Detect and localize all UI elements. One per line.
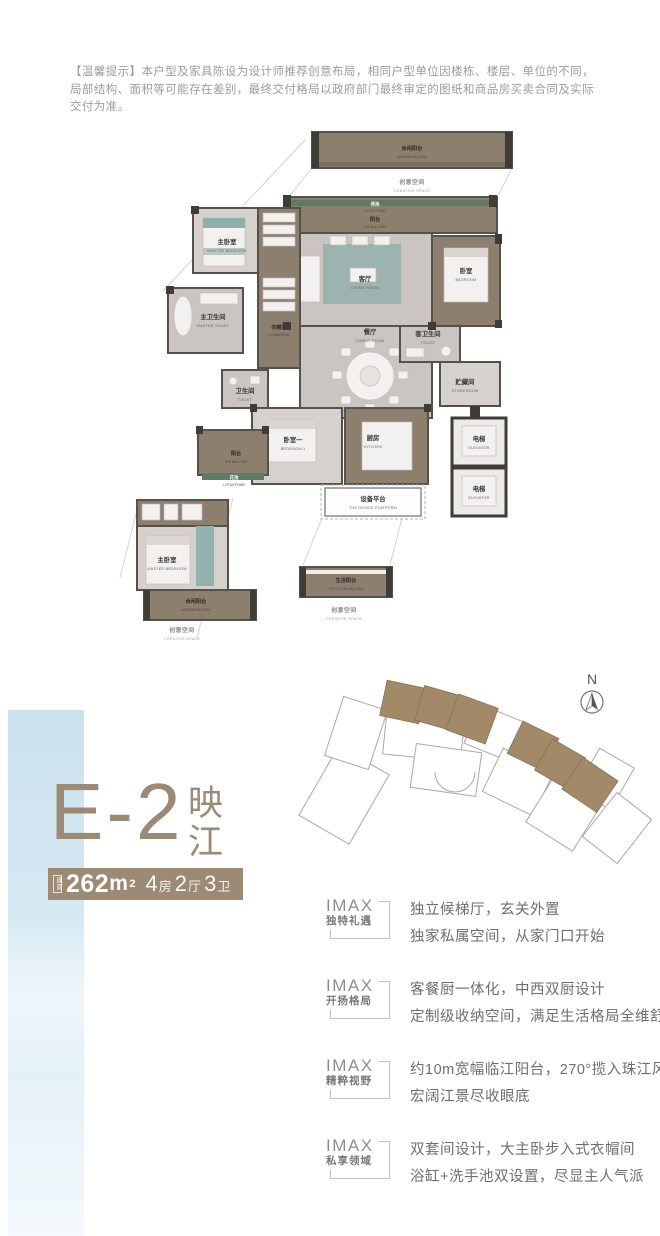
feature-text-3: 约10m宽幅临江阳台，270°揽入珠江风光 宏阔江景尽收眼底	[410, 1057, 660, 1111]
label-master-detail-zh: 主卧室	[158, 555, 178, 564]
unit-name: 映 江	[188, 784, 223, 862]
label-device-en: THE DEVICE PLATFORM	[349, 506, 397, 510]
feature-badge-1: IMAX 独特礼遇	[330, 901, 390, 939]
room-device-platform: 设备平台 THE DEVICE PLATFORM	[321, 485, 425, 519]
feature-line: 独家私属空间，从家门口开始	[410, 924, 605, 951]
label-master-toilet-en: MASTER TOILET	[197, 324, 230, 328]
area-value: 262	[66, 870, 109, 899]
feature-line: 宏阔江景尽收眼底	[410, 1084, 660, 1111]
label-dining-en: DINING ROOM	[356, 339, 384, 343]
feature-brand-1: IMAX	[326, 897, 374, 915]
room-guest-toilet: 客卫生间 TOILET	[400, 326, 460, 362]
label-balcony-left-en: THE BALCONY	[224, 460, 248, 464]
label-creative-bottom-zh: 创意空间	[330, 606, 357, 614]
label-leisure-balcony-top-en: LEISURE BALCONY	[397, 155, 429, 159]
feature-row-1: IMAX 独特礼遇 独立候梯厅，玄关外置 独家私属空间，从家门口开始	[330, 897, 646, 952]
feature-line: 客餐厨一体化，中西双厨设计	[410, 977, 660, 1004]
spec-halls-num: 2	[175, 871, 187, 897]
unit-name-char-1: 映	[188, 784, 223, 823]
feature-brand-4: IMAX	[326, 1137, 374, 1155]
room-master-toilet: 主卫生间 MASTER TOILET	[168, 288, 243, 353]
area-badge: 建面 262 m 2 4 房 2 厅 3 卫	[48, 868, 243, 900]
label-toilet-zh: 卫生间	[236, 386, 255, 395]
feature-row-4: IMAX 私享领域 双套间设计，大主卧步入式衣帽间 浴缸+洗手池双设置，尽显主人…	[330, 1137, 646, 1192]
area-unit: m	[109, 872, 128, 896]
label-toilet-en: TOILET	[238, 398, 253, 402]
room-kitchen: 厨房 KITCHEN	[345, 408, 428, 484]
room-master-bedroom: 主卧室 MASTER BEDROOM	[193, 208, 258, 273]
feature-brand-3: IMAX	[326, 1057, 374, 1075]
label-creative-detail-en: CREATIVE SPACE	[164, 637, 201, 641]
room-living: 客厅 LIVING ROOM	[285, 233, 432, 326]
unit-name-char-2: 江	[188, 823, 223, 862]
north-label: N	[587, 671, 597, 687]
room-elevators: 电梯 ELEVATOR 电梯 ELEVATOR	[452, 406, 506, 516]
room-leisure-balcony-top: 休闲阳台 LEISURE BALCONY	[312, 132, 512, 168]
spec-halls-unit: 厅	[188, 876, 201, 895]
label-elevator2-en: ELEVATOR	[468, 496, 489, 500]
floor-plan-svg: 休闲阳台 LEISURE BALCONY 创意空间 CREATIVE SPACE…	[0, 108, 660, 656]
label-leisure-detail-en: LEISURE BALCONY	[181, 608, 213, 612]
label-master-toilet-zh: 主卫生间	[200, 312, 225, 321]
feature-row-2: IMAX 开扬格局 客餐厨一体化，中西双厨设计 定制级收纳空间，满足生活格局全维…	[330, 977, 646, 1032]
label-master-bedroom-en: MASTER BEDROOM	[207, 249, 246, 253]
site-plan: N	[285, 660, 655, 865]
label-device-zh: 设备平台	[360, 494, 385, 503]
label-kitchen-en: KITCHEN	[364, 445, 382, 449]
label-balcony-top-en: THE BALCONY	[363, 225, 387, 229]
label-life-balcony-en: LIFE IN THE BALCONY	[328, 587, 364, 591]
feature-text-1: 独立候梯厅，玄关外置 独家私属空间，从家门口开始	[410, 897, 605, 951]
unit-code: E-2	[50, 766, 184, 858]
feature-badge-4: IMAX 私享领域	[330, 1141, 390, 1179]
svg-text:创意空间: 创意空间	[398, 178, 425, 186]
feature-subtitle-3: 精粹视野	[326, 1075, 374, 1088]
room-balcony-top: 荷池 LOTUS POND 阳台 THE BALCONY	[283, 195, 497, 233]
spec-rooms-unit: 房	[159, 876, 172, 895]
label-lotus-pond-top-zh: 荷池	[370, 201, 380, 208]
site-plan-svg: N	[285, 660, 655, 865]
label-creative-bottom-en: CREATIVE SPACE	[326, 617, 363, 621]
spec-rooms-num: 4	[146, 871, 158, 897]
room-spec: 4 房 2 厅 3 卫	[146, 871, 234, 897]
label-guest-toilet-en: TOILET	[421, 341, 436, 345]
label-cloakroom-en: CLOAKROOM	[268, 333, 290, 337]
feature-text-2: 客餐厨一体化，中西双厨设计 定制级收纳空间，满足生活格局全维舒享	[410, 977, 660, 1031]
feature-line: 双套间设计，大主卧步入式衣帽间	[410, 1137, 644, 1164]
label-bedroom1-zh: 卧室一	[284, 435, 304, 444]
feature-line: 独立候梯厅，玄关外置	[410, 897, 605, 924]
label-storeroom-en: STOREROOM	[452, 389, 479, 393]
feature-line: 定制级收纳空间，满足生活格局全维舒享	[410, 1004, 660, 1031]
label-lotus-pond-top-en: LOTUS POND	[364, 209, 386, 213]
feature-line: 约10m宽幅临江阳台，270°揽入珠江风光	[410, 1057, 660, 1084]
label-creative-detail-zh: 创意空间	[168, 626, 195, 634]
label-living-zh: 客厅	[359, 274, 372, 283]
label-life-balcony-zh: 生活阳台	[336, 576, 357, 584]
label-dining-zh: 餐厅	[364, 327, 377, 336]
room-bedroom: 卧室 BEDROOM	[432, 236, 500, 326]
label-elevator1-en: ELEVATOR	[468, 446, 489, 450]
feature-badge-2: IMAX 开扬格局	[330, 981, 390, 1019]
label-leisure-balcony-top-zh: 休闲阳台	[401, 144, 423, 152]
room-cloakroom: 衣帽间 CLOAKROOM	[258, 208, 300, 368]
label-creative-space-top: 创意空间 CREATIVE SPACE	[394, 178, 431, 193]
feature-brand-2: IMAX	[326, 977, 374, 995]
label-bedroom-zh: 卧室	[460, 266, 473, 275]
label-kitchen-zh: 厨房	[367, 433, 380, 442]
room-balcony-left: 阳台 THE BALCONY 花池 LOTUS POND	[198, 430, 268, 487]
feature-subtitle-1: 独特礼遇	[326, 915, 374, 928]
area-label: 建面	[53, 875, 62, 893]
feature-text-4: 双套间设计，大主卧步入式衣帽间 浴缸+洗手池双设置，尽显主人气派	[410, 1137, 644, 1191]
label-balcony-left-zh: 阳台	[231, 449, 241, 457]
label-master-detail-en: MASTER BEDROOM	[147, 567, 186, 571]
detail-life-balcony: 生活阳台 LIFE IN THE BALCONY 创意空间 CREATIVE S…	[300, 567, 392, 621]
label-guest-toilet-zh: 客卫生间	[415, 329, 440, 338]
spec-baths-unit: 卫	[217, 876, 230, 895]
label-bedroom-en: BEDROOM	[455, 278, 476, 282]
label-storeroom-zh: 贮藏间	[455, 377, 475, 386]
flyer-page: 【温馨提示】本户型及家具陈设为设计师推荐创意布局，相同户型单位因楼栋、楼层、单位…	[0, 0, 660, 1236]
detail-master-suite: 主卧室 MASTER BEDROOM 休闲阳台 LEISURE BALCONY …	[137, 500, 256, 641]
spec-baths-num: 3	[204, 871, 216, 897]
label-master-bedroom-zh: 主卧室	[218, 237, 238, 246]
feature-list: IMAX 独特礼遇 独立候梯厅，玄关外置 独家私属空间，从家门口开始 IMAX …	[330, 897, 646, 1217]
label-lotus-left-en: LOTUS POND	[223, 483, 245, 487]
label-living-en: LIVING ROOM	[351, 286, 379, 290]
feature-row-3: IMAX 精粹视野 约10m宽幅临江阳台，270°揽入珠江风光 宏阔江景尽收眼底	[330, 1057, 646, 1112]
room-storeroom: 贮藏间 STOREROOM	[440, 362, 500, 406]
north-compass: N	[581, 671, 603, 713]
label-elevator1-zh: 电梯	[473, 434, 486, 443]
feature-line: 浴缸+洗手池双设置，尽显主人气派	[410, 1164, 644, 1191]
feature-subtitle-2: 开扬格局	[326, 995, 374, 1008]
label-balcony-top-zh: 阳台	[370, 215, 380, 223]
label-elevator2-zh: 电梯	[473, 484, 486, 493]
label-bedroom1-en: BEDROOM 1	[281, 447, 306, 451]
area-exponent: 2	[129, 878, 135, 890]
feature-badge-3: IMAX 精粹视野	[330, 1061, 390, 1099]
label-lotus-left-zh: 花池	[230, 474, 239, 481]
floor-plan: 休闲阳台 LEISURE BALCONY 创意空间 CREATIVE SPACE…	[0, 108, 660, 656]
feature-subtitle-4: 私享领域	[326, 1155, 374, 1168]
svg-text:CREATIVE SPACE: CREATIVE SPACE	[394, 189, 431, 193]
room-toilet: 卫生间 TOILET	[222, 370, 268, 408]
label-leisure-detail-zh: 休闲阳台	[185, 597, 207, 605]
